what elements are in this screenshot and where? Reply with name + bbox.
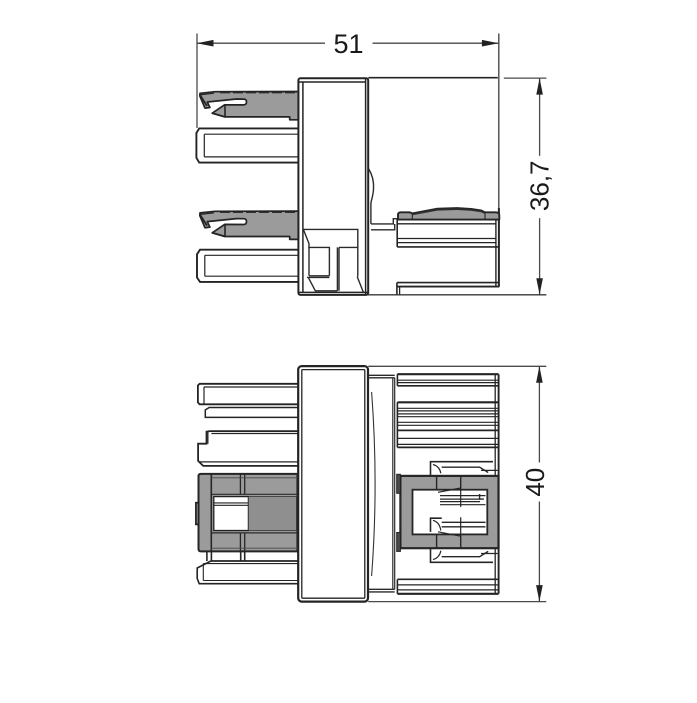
svg-text:36,7: 36,7: [524, 160, 554, 211]
svg-text:51: 51: [333, 29, 363, 59]
svg-text:40: 40: [520, 468, 550, 497]
